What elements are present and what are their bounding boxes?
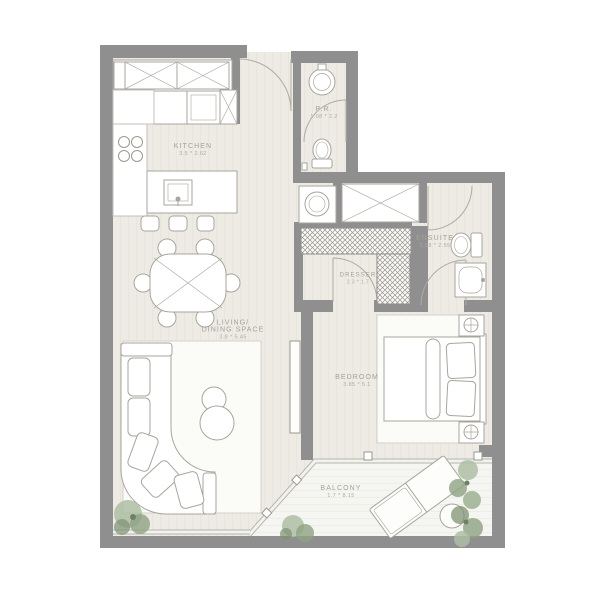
exterior-mask bbox=[352, 40, 508, 174]
bar-stool bbox=[141, 216, 159, 231]
corridor-fixtures bbox=[299, 184, 419, 223]
counter-left bbox=[113, 124, 147, 216]
sofa-cushion bbox=[128, 398, 150, 436]
sofa-armrest-end bbox=[203, 473, 216, 514]
pr-paper-holder bbox=[302, 163, 307, 170]
pillow bbox=[446, 380, 476, 416]
wall-top-kitchen bbox=[100, 45, 247, 58]
pr-toilet-seat bbox=[316, 142, 328, 158]
wall-closet-ensuite bbox=[419, 183, 427, 223]
wall-left bbox=[100, 45, 113, 548]
wall-dresser-ensuite bbox=[410, 226, 428, 312]
headboard bbox=[480, 334, 486, 424]
counter-top bbox=[113, 90, 154, 124]
pr-toilet-tank bbox=[312, 159, 332, 168]
wall-bedroom-top-3 bbox=[464, 300, 492, 312]
pr-basin-bowl bbox=[314, 74, 331, 91]
wardrobe-vertical bbox=[377, 254, 410, 304]
floorplan-drawing bbox=[0, 0, 600, 600]
ensuite-sink bbox=[459, 267, 482, 293]
ensuite-toilet-tank bbox=[471, 233, 482, 257]
coffee-table-large bbox=[200, 406, 234, 440]
glass-post bbox=[364, 452, 372, 460]
bed-blanket-roll bbox=[426, 339, 440, 419]
tall-unit-2-inner bbox=[191, 95, 216, 120]
pr-tap bbox=[318, 64, 326, 70]
sliding-door-panel bbox=[290, 341, 300, 433]
ensuite-fixtures bbox=[451, 233, 486, 297]
wall-bedroom-left bbox=[301, 300, 313, 460]
ensuite-faucet bbox=[482, 279, 485, 282]
glass-post bbox=[474, 452, 482, 460]
sofa-cushion bbox=[128, 358, 150, 396]
bedroom-furniture bbox=[377, 315, 486, 443]
wall-pr-left bbox=[293, 58, 301, 183]
cabinet-end bbox=[114, 62, 125, 89]
bar-stool bbox=[169, 216, 187, 231]
wall-right bbox=[492, 172, 505, 548]
wardrobe-horizontal bbox=[301, 228, 411, 254]
pillow bbox=[446, 342, 476, 378]
ensuite-toilet-seat bbox=[455, 237, 468, 254]
wall-corridor-top bbox=[295, 172, 505, 183]
wall-pr-right bbox=[346, 51, 358, 183]
sofa-armrest-top bbox=[121, 343, 172, 356]
floorplan-canvas: KITCHEN 3.5 * 2.62 P.R. 1.08 * 2.2 ENSUI… bbox=[0, 0, 600, 600]
bar-stool bbox=[197, 216, 214, 231]
tall-unit-1 bbox=[154, 91, 187, 124]
dining-chair bbox=[134, 274, 152, 292]
